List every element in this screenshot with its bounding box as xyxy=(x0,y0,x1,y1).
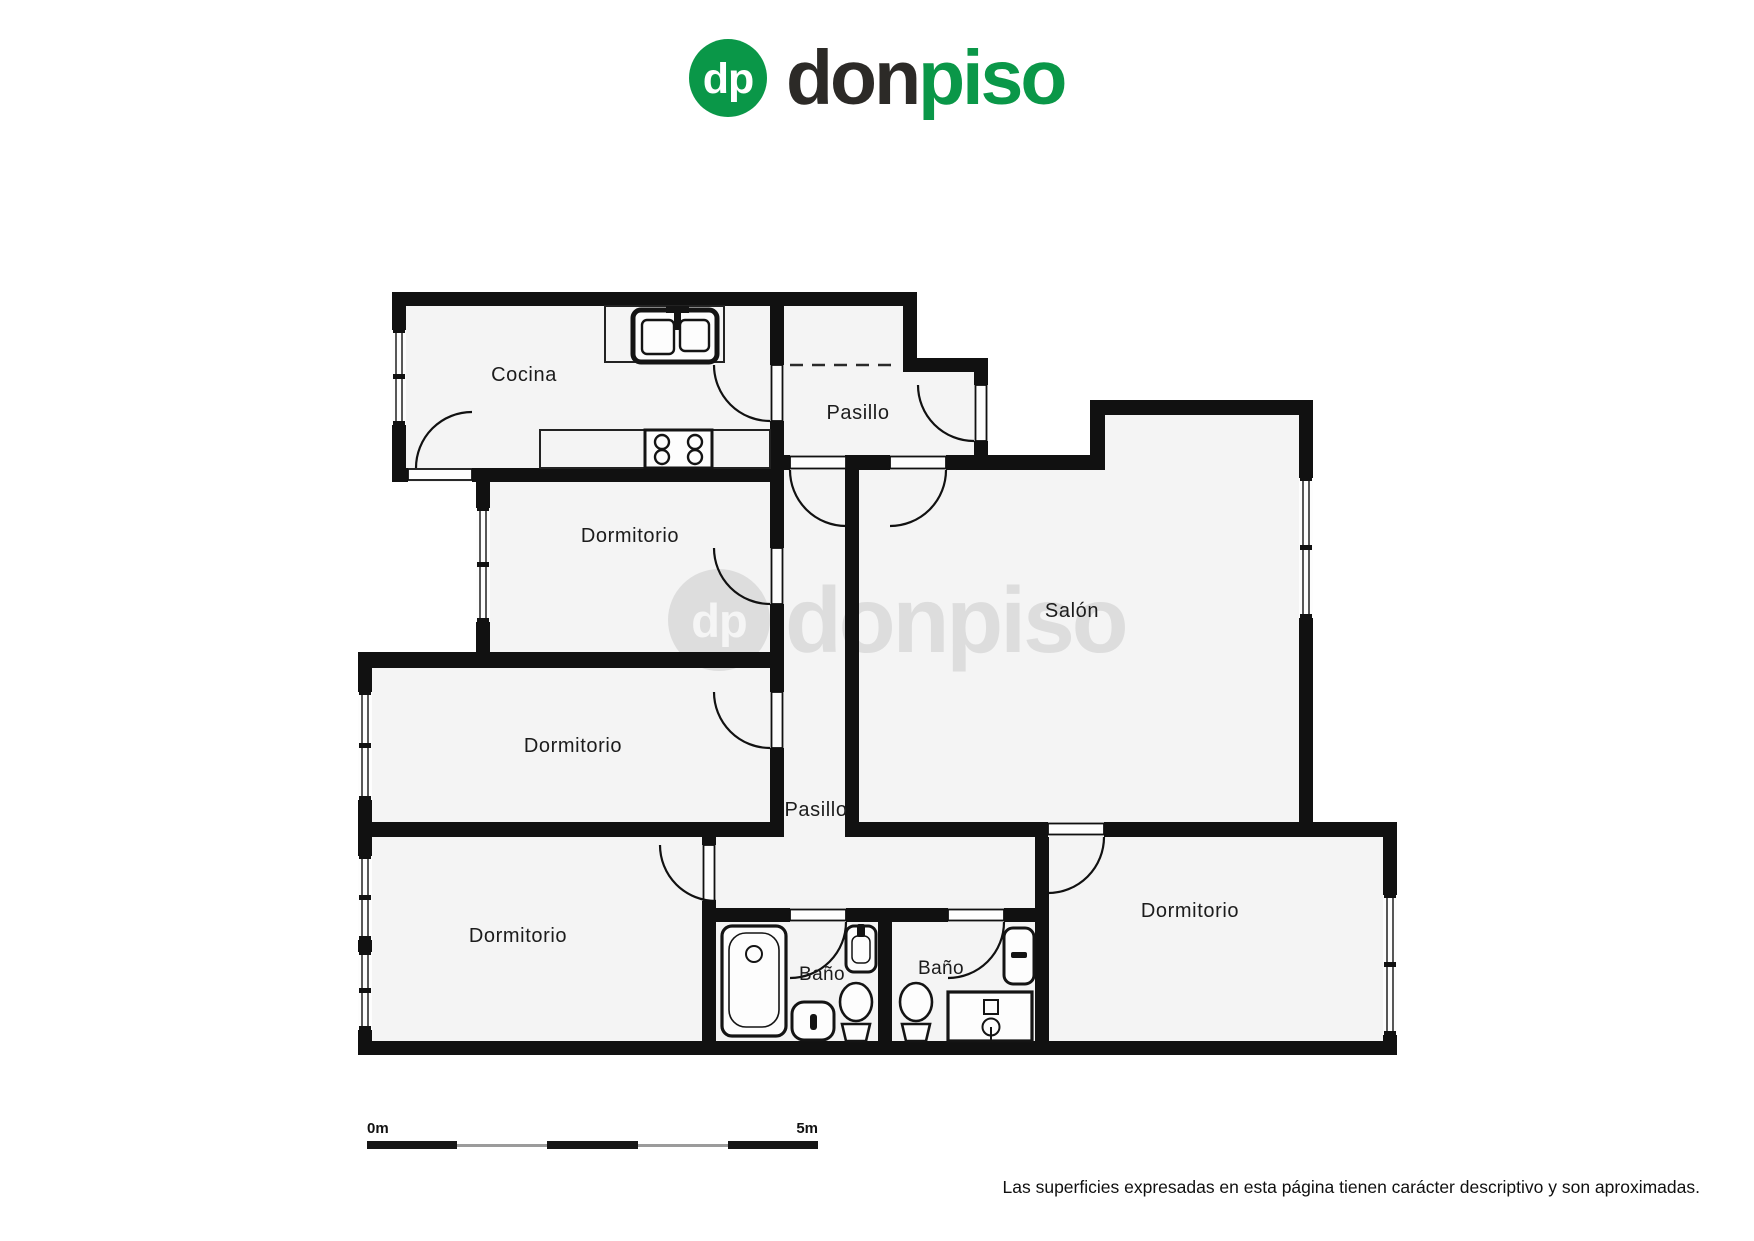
room-label-bano-2: Baño xyxy=(918,958,964,979)
disclaimer-text: Las superficies expresadas en esta págin… xyxy=(1003,1177,1700,1197)
room-label-dormitorio-4: Dormitorio xyxy=(1141,900,1239,922)
room-label-dormitorio-3: Dormitorio xyxy=(469,925,567,947)
brand-wordmark-don: don xyxy=(786,35,918,121)
floorplan-canvas: dp donpiso dp donpiso xyxy=(0,0,1754,1241)
toilet-1 xyxy=(840,983,872,1041)
room-label-cocina: Cocina xyxy=(491,364,557,386)
scale-bar: 0m 5m xyxy=(367,1120,818,1149)
scale-end-label: 5m xyxy=(796,1120,818,1137)
window-salon xyxy=(1299,476,1313,619)
kitchen-sink xyxy=(633,306,717,362)
shower-tray xyxy=(948,992,1032,1041)
toilet-2 xyxy=(900,983,932,1041)
tap-icon xyxy=(1011,952,1027,958)
brand-monogram: dp xyxy=(703,55,754,103)
room-label-salon: Salón xyxy=(1045,600,1099,622)
brand-wordmark: donpiso xyxy=(786,35,1065,121)
room-label-dormitorio-1: Dormitorio xyxy=(581,525,679,547)
window-dormitorio-1 xyxy=(476,506,490,623)
room-label-dormitorio-2: Dormitorio xyxy=(524,735,622,757)
window-dormitorio-4 xyxy=(1383,893,1397,1036)
cooktop xyxy=(645,430,712,468)
room-label-pasillo-superior: Pasillo xyxy=(826,402,889,424)
window-dormitorio-3-b xyxy=(358,950,372,1031)
scale-start-label: 0m xyxy=(367,1120,389,1137)
bathtub xyxy=(722,926,786,1036)
brand-wordmark-piso: piso xyxy=(918,35,1065,121)
room-label-pasillo-inferior: Pasillo xyxy=(784,799,847,821)
brand-logo: dp donpiso xyxy=(689,35,1065,121)
washbasin-2 xyxy=(1004,928,1034,984)
window-dormitorio-3-a xyxy=(358,854,372,941)
room-label-bano-1: Baño xyxy=(799,964,845,985)
window-dormitorio-2 xyxy=(358,690,372,801)
tap-icon xyxy=(857,924,865,937)
watermark-monogram: dp xyxy=(691,594,746,647)
washbasin-1 xyxy=(846,924,876,972)
bidet xyxy=(792,1002,834,1040)
window-cocina xyxy=(392,328,406,426)
